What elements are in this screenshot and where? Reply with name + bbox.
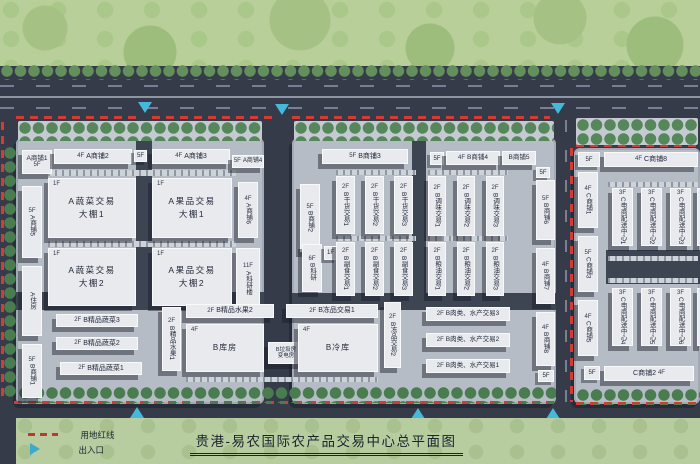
legend-entrance-label: 出入口 bbox=[78, 445, 104, 455]
left-tree-column bbox=[3, 146, 18, 398]
road-lane-dashes bbox=[0, 85, 700, 87]
building-label: B粮油交易3 bbox=[491, 256, 498, 290]
building-label: C商铺3 bbox=[584, 257, 591, 278]
floor-tag: 5F bbox=[433, 156, 440, 162]
floor-cap: 5F bbox=[538, 370, 554, 382]
floor-tag: 5F bbox=[349, 153, 356, 160]
entrance-marker-icon bbox=[138, 102, 152, 113]
building-label: C商铺8 bbox=[644, 156, 667, 164]
floor-cap: 5F bbox=[536, 167, 550, 178]
building-b-shop2: 5F B商铺2 bbox=[300, 184, 320, 252]
building-label: 大棚2 bbox=[79, 279, 105, 288]
building-b-shop5: B商铺5 bbox=[502, 151, 536, 165]
floor-tag: 4F bbox=[658, 370, 665, 377]
building-b-frozen2: 2F B冻品交易2 bbox=[384, 302, 401, 368]
building-label: B商铺4 bbox=[467, 154, 488, 161]
dock-strip bbox=[48, 170, 236, 176]
building-label: C电商配送中心4 bbox=[619, 297, 626, 344]
floor-tag: 2F bbox=[491, 248, 498, 255]
floor-tag: 4F bbox=[77, 153, 84, 160]
red-line-symbol bbox=[28, 433, 58, 436]
building-label: B商铺6 bbox=[542, 203, 549, 224]
bottom-tree-row bbox=[18, 386, 556, 403]
floor-tag: 5F bbox=[137, 153, 144, 159]
floor-tag: 2F bbox=[437, 363, 444, 370]
bottom-tree-row bbox=[576, 388, 700, 405]
dock-strip bbox=[608, 182, 698, 187]
building-a-shop6: 4F A商铺6 bbox=[238, 182, 258, 238]
floor-tag: 4F bbox=[542, 325, 549, 332]
building-b-meat2: 2F B肉类、水产交易2 bbox=[426, 333, 510, 347]
building-b-pfruit1: 2F B精品水果1 bbox=[162, 307, 181, 371]
floor-tag: 4F bbox=[584, 314, 591, 321]
building-label: B肉类、水产交易2 bbox=[446, 336, 499, 343]
floor-cap: 5F bbox=[584, 366, 600, 380]
parking-tree-strip bbox=[294, 121, 554, 141]
floor-tag: 1F bbox=[53, 251, 60, 258]
building-b-dry3: 2F B干货交易3 bbox=[394, 176, 413, 234]
parking-tree-strip bbox=[18, 121, 262, 141]
building-a-shop1: A商铺1 5F bbox=[22, 150, 52, 174]
building-label: B商铺3 bbox=[358, 153, 381, 161]
building-label: B精品蔬菜1 bbox=[87, 365, 124, 373]
entrance-symbol-icon bbox=[30, 443, 40, 455]
building-a-veg-shed2: 1F A蔬菜交易 大棚2 bbox=[48, 248, 136, 306]
building-b-food3: 2F B副食交易3 bbox=[394, 242, 413, 296]
building-label: B副食交易3 bbox=[400, 256, 407, 290]
building-label: C电商配送中心2 bbox=[648, 197, 655, 244]
building-a-fruit-shed1: 1F A果品交易 大棚1 bbox=[152, 178, 232, 238]
dock-strip bbox=[428, 236, 508, 241]
floor-tag: 2F bbox=[491, 185, 498, 192]
floor-tag: 4F bbox=[542, 262, 549, 269]
floor-tag: 4F bbox=[635, 156, 642, 163]
building-a-shop3: 4F A商铺3 bbox=[152, 149, 230, 164]
building-c-shop1: 4F C商铺1 bbox=[578, 172, 598, 228]
floor-tag: 3F bbox=[677, 190, 684, 197]
building-b-season1: 2F B调味交易1 bbox=[428, 176, 446, 236]
green-field bbox=[0, 0, 700, 66]
floor-tag: 6F bbox=[308, 256, 315, 263]
parking-tree-strip bbox=[576, 118, 698, 145]
floor-tag: 2F bbox=[168, 318, 175, 325]
building-label: B干货交易2 bbox=[371, 192, 378, 226]
building-a-house: A住房 bbox=[22, 266, 42, 336]
building-b-pfruit2: 2F B精品水果2 bbox=[186, 304, 274, 318]
entrance-marker-icon bbox=[275, 104, 289, 115]
floor-tag: 2F bbox=[342, 184, 349, 191]
building-label: B商铺2 bbox=[306, 211, 313, 232]
building-label: C商铺1 bbox=[584, 193, 591, 214]
street-tree-row bbox=[0, 64, 700, 80]
floor-cap: 5F bbox=[134, 150, 147, 162]
building-c-shop3: 5F C商铺3 bbox=[578, 236, 598, 292]
building-a-veg-shed1: 1F A蔬菜交易 大棚1 bbox=[48, 178, 136, 238]
building-b-meat3: 2F B肉类、水产交易3 bbox=[426, 307, 510, 321]
dock-strip bbox=[608, 256, 698, 261]
building-label: C电商配送中心5 bbox=[648, 297, 655, 344]
floor-tag: 5F bbox=[585, 157, 592, 163]
floor-tag: 3F bbox=[619, 290, 626, 297]
dock-strip bbox=[186, 377, 378, 382]
building-b-shop4: 4F B商铺4 bbox=[446, 151, 500, 165]
floor-tag: 5F bbox=[584, 250, 591, 257]
floor-tag: 5F bbox=[306, 204, 313, 211]
internal-road-vertical bbox=[412, 140, 426, 293]
building-b-pveg2: 2F B精品蔬菜2 bbox=[56, 337, 138, 350]
floor-tag: 3F bbox=[677, 290, 684, 297]
floor-tag: 2F bbox=[74, 340, 81, 347]
floor-tag: 3F bbox=[648, 290, 655, 297]
floor-tag: 2F bbox=[433, 185, 440, 192]
floor-tag: 1F bbox=[53, 181, 60, 188]
floor-tag: 5F bbox=[542, 373, 549, 379]
floor-tag: 2F bbox=[433, 248, 440, 255]
floor-tag: 2F bbox=[462, 185, 469, 192]
floor-tag: 2F bbox=[389, 314, 396, 321]
floor-tag: 2F bbox=[371, 184, 378, 191]
building-c-shop5: 4F C商铺5 bbox=[578, 300, 598, 356]
floor-tag: 4F bbox=[175, 153, 182, 160]
building-label: B副食交易1 bbox=[342, 256, 349, 290]
building-label: B商铺8 bbox=[542, 332, 549, 353]
building-label: C电商配送中心1 bbox=[619, 197, 626, 244]
building-label: A商铺4 bbox=[243, 158, 262, 165]
building-label: B精品蔬菜2 bbox=[83, 340, 120, 348]
building-c-shop2: C商铺2 4F bbox=[604, 366, 694, 381]
building-a-shop5: 5F A商铺5 bbox=[22, 186, 42, 258]
building-b-shop8: 4F B商铺8 bbox=[536, 312, 555, 366]
building-c-ecom2: 3F C电商配送中心2 bbox=[641, 188, 662, 246]
building-b-shop1: 5F B商铺1 bbox=[22, 344, 42, 398]
building-c-ecom4: 3F C电商配送中心4 bbox=[612, 288, 633, 346]
floor-tag: 4F bbox=[458, 155, 465, 162]
building-label: A蔬菜交易 bbox=[68, 266, 115, 275]
floor-cap: 5F bbox=[578, 152, 600, 167]
floor-tag: 2F bbox=[437, 311, 444, 318]
floor-tag: 2F bbox=[207, 308, 214, 315]
building-b-frozen1: 2F B冻品交易1 bbox=[286, 304, 378, 318]
entrance-marker-icon bbox=[551, 103, 565, 114]
building-a-research: 11F A科研楼 bbox=[236, 248, 260, 310]
building-label: B调味交易1 bbox=[433, 193, 440, 227]
floor-cap: 5F bbox=[430, 152, 444, 165]
floor-tag: 2F bbox=[78, 365, 85, 372]
site-plan: A商铺1 5F 4F A商铺2 5F 4F A商铺3 5F A商铺4 5F A商… bbox=[0, 0, 700, 464]
building-b-food1: 2F B副食交易1 bbox=[336, 242, 355, 296]
floor-tag: 2F bbox=[74, 317, 81, 324]
building-c-ecom1: 3F C电商配送中心1 bbox=[612, 188, 633, 246]
building-b-season2: 2F B调味交易2 bbox=[457, 176, 475, 236]
floor-tag: 4F bbox=[584, 186, 591, 193]
building-label: B精品水果1 bbox=[168, 326, 175, 360]
building-label: A蔬菜交易 bbox=[68, 197, 115, 206]
building-b-pveg3: 2F B精品蔬菜3 bbox=[56, 314, 138, 327]
building-label: A商铺5 bbox=[28, 215, 35, 236]
road-center-line bbox=[0, 96, 700, 98]
floor-tag: 4F bbox=[303, 327, 310, 334]
building-label: 大棚1 bbox=[79, 210, 105, 219]
building-label: B冻品交易1 bbox=[318, 307, 355, 315]
building-b-grain3: 2F B粮油交易3 bbox=[486, 242, 504, 296]
building-b-coldstore: 4F B冷库 bbox=[298, 324, 378, 372]
floor-tag: 5F bbox=[539, 170, 546, 176]
floor-tag: 2F bbox=[400, 184, 407, 191]
floor-tag: 5F bbox=[542, 196, 549, 203]
building-label: B库房 bbox=[213, 344, 237, 353]
entrance-marker-icon bbox=[130, 407, 144, 418]
building-a-fruit-shed2: 1F A果品交易 大棚2 bbox=[152, 248, 232, 306]
building-b-warehouse: 4F B库房 bbox=[186, 324, 264, 372]
building-label: A科研楼 bbox=[244, 271, 251, 295]
building-label: B肉类、水产交易1 bbox=[446, 362, 499, 369]
building-label: A住房 bbox=[28, 292, 35, 309]
building-label: B冷库 bbox=[326, 344, 350, 353]
building-label: B商铺1 bbox=[28, 364, 35, 385]
building-b-shop3: 5F B商铺3 bbox=[322, 149, 408, 164]
building-label: A商铺1 bbox=[27, 155, 48, 162]
building-label: B肉类、水产交易3 bbox=[446, 310, 499, 317]
legend-boundary-label: 用地红线 bbox=[80, 430, 114, 440]
building-c-ecom3: 3F C电商配送中心3 bbox=[670, 188, 691, 246]
floor-tag: 2F bbox=[400, 248, 407, 255]
building-label: 大棚1 bbox=[179, 210, 205, 219]
dock-strip bbox=[608, 278, 698, 283]
floor-tag: 2F bbox=[462, 248, 469, 255]
building-label: A商铺6 bbox=[244, 203, 251, 224]
boundary-red-line bbox=[16, 116, 138, 119]
building-b-shop6: 5F B商铺6 bbox=[536, 180, 555, 240]
building-c-ecom6: 3F C电商配送中心6 bbox=[670, 288, 691, 346]
boundary-red-line-vertical bbox=[570, 148, 573, 402]
building-label: A商铺3 bbox=[184, 153, 207, 161]
floor-tag: 5F bbox=[28, 357, 35, 364]
internal-road-vertical bbox=[136, 140, 152, 292]
building-label: C电商配送中心3 bbox=[677, 197, 684, 244]
building-c-shop8: 4F C商铺8 bbox=[604, 152, 698, 167]
building-label: B商铺7 bbox=[542, 269, 549, 290]
building-label: A商铺2 bbox=[86, 153, 109, 161]
title-wrap: 贵港-易农国际农产品交易中心总平面图 bbox=[146, 430, 506, 456]
building-b-pveg1: 2F B精品蔬菜1 bbox=[60, 362, 142, 375]
building-label: C商铺2 bbox=[633, 370, 656, 378]
floor-tag: 4F bbox=[244, 196, 251, 203]
building-b-dry2: 2F B干货交易2 bbox=[365, 176, 384, 234]
dock-strip bbox=[48, 241, 236, 247]
building-label: A果品交易 bbox=[168, 197, 215, 206]
building-b-grain2: 2F B粮油交易2 bbox=[457, 242, 475, 296]
building-b-food2: 2F B副食交易2 bbox=[365, 242, 384, 296]
road-lane-dashes-vertical bbox=[565, 120, 567, 404]
building-label: B副食交易2 bbox=[371, 256, 378, 290]
dock-strip bbox=[336, 170, 416, 175]
floor-tag: 5F bbox=[234, 158, 241, 165]
building-label: B商铺5 bbox=[509, 154, 530, 161]
floor-tag: 5F bbox=[28, 208, 35, 215]
building-b-grain1: 2F B粮油交易1 bbox=[428, 242, 446, 296]
building-c-ecom5: 3F C电商配送中心5 bbox=[641, 288, 662, 346]
floor-tag: 5F bbox=[33, 162, 40, 169]
floor-tag: 2F bbox=[309, 308, 316, 315]
floor-tag: 3F bbox=[648, 190, 655, 197]
building-b-meat1: 2F B肉类、水产交易1 bbox=[426, 359, 510, 373]
building-label: B干货交易3 bbox=[400, 192, 407, 226]
floor-tag: 2F bbox=[437, 337, 444, 344]
dock-strip bbox=[336, 236, 416, 241]
building-b-season3: 2F B调味交易3 bbox=[486, 176, 504, 236]
boundary-red-line bbox=[152, 116, 276, 119]
building-label: A果品交易 bbox=[168, 266, 215, 275]
building-b-research: 6F B科研 bbox=[302, 244, 322, 292]
building-label: B冻品交易2 bbox=[389, 322, 396, 356]
building-label: B粮油交易2 bbox=[462, 256, 469, 290]
floor-tag: 1F bbox=[327, 250, 334, 256]
floor-tag: 1F bbox=[157, 251, 164, 258]
floor-tag: 1F bbox=[157, 181, 164, 188]
road-lane-dashes bbox=[0, 107, 700, 109]
floor-tag: 5F bbox=[588, 370, 595, 376]
floor-tag: 3F bbox=[619, 190, 626, 197]
floor-tag: 2F bbox=[371, 248, 378, 255]
building-label: B调味交易2 bbox=[462, 193, 469, 227]
building-label: 大棚2 bbox=[179, 279, 205, 288]
building-label: B调味交易3 bbox=[491, 193, 498, 227]
building-label: C商铺5 bbox=[584, 321, 591, 342]
legend-entrance-item: 出入口 bbox=[30, 440, 104, 458]
building-a-shop2: 4F A商铺2 bbox=[54, 149, 132, 164]
dock-strip bbox=[428, 170, 508, 175]
building-a-shop4: 5F A商铺4 bbox=[232, 155, 264, 168]
building-label: B精品蔬菜3 bbox=[83, 317, 120, 325]
building-b-dry1: 2F B干货交易1 bbox=[336, 176, 355, 234]
building-label: 变电房 bbox=[278, 353, 295, 359]
building-label: B精品水果2 bbox=[216, 307, 253, 315]
floor-tag: 4F bbox=[191, 327, 198, 334]
plan-title: 贵港-易农国际农产品交易中心总平面图 bbox=[190, 430, 463, 456]
building-b-shop7: 4F B商铺7 bbox=[536, 248, 555, 304]
building-label: B科研 bbox=[308, 263, 315, 280]
building-label: C电商配送中心6 bbox=[677, 297, 684, 344]
building-label: B干货交易1 bbox=[342, 192, 349, 226]
building-label: B粮油交易1 bbox=[433, 256, 440, 290]
floor-tag: 2F bbox=[342, 248, 349, 255]
floor-tag: 11F bbox=[243, 263, 253, 270]
boundary-red-line bbox=[292, 116, 550, 119]
legend-panel: 用地红线 出入口 贵港-易农国际农产品交易中心总平面图 bbox=[16, 418, 700, 464]
